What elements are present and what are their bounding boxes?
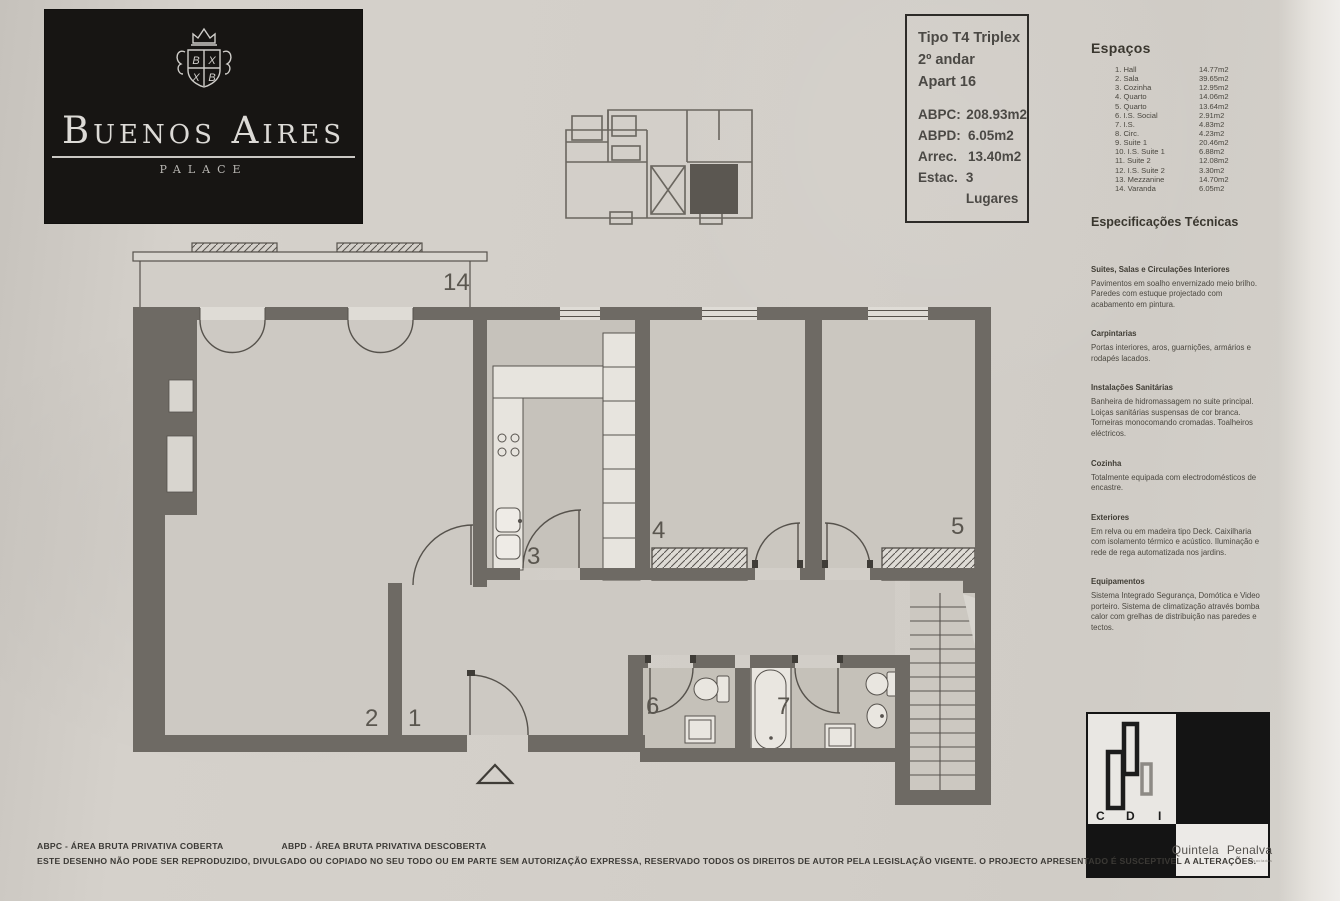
spec-section: Carpintarias Portas interiores, aros, gu… bbox=[1091, 329, 1263, 364]
espacos-item: 12. I.S. Suite 23.30m2 bbox=[1091, 167, 1271, 175]
espacos-item: 1. Hall14.77m2 bbox=[1091, 66, 1271, 74]
room-label-quarto5: 5 bbox=[951, 513, 964, 540]
unit-metrics: ABPC: 208.93m2 ABPD: 6.05m2 Arrec. 13.40… bbox=[918, 105, 1027, 210]
metric-estac: Estac. 3 Lugares bbox=[918, 168, 1027, 210]
footer: ABPC - ÁREA BRUTA PRIVATIVA COBERTAABPD … bbox=[37, 841, 1256, 866]
logo-subtitle: PALACE bbox=[159, 163, 247, 176]
unit-floor: 2º andar bbox=[918, 50, 1027, 72]
espacos-item: 7. I.S.4.83m2 bbox=[1091, 121, 1271, 129]
scanned-floorplan-sheet: B X X B Buenos Aires PALACE Tipo T4 Trip… bbox=[0, 0, 1340, 901]
espacos-title: Espaços bbox=[1091, 40, 1271, 56]
entrance-arrow-icon bbox=[478, 765, 512, 783]
espacos-item: 11. Suite 212.08m2 bbox=[1091, 157, 1271, 165]
espacos-item: 4. Quarto14.06m2 bbox=[1091, 93, 1271, 101]
footer-legend: ABPC - ÁREA BRUTA PRIVATIVA COBERTAABPD … bbox=[37, 841, 1256, 851]
room-label-is7: 7 bbox=[777, 693, 790, 720]
brand-black-cell bbox=[1176, 714, 1268, 824]
room-label-is6: 6 bbox=[646, 693, 659, 720]
espacos-item: 2. Sala39.65m2 bbox=[1091, 75, 1271, 83]
espacos-item: 9. Suite 120.46m2 bbox=[1091, 139, 1271, 147]
cdi-logo-icon: C D I bbox=[1088, 714, 1176, 824]
spec-section: Suites, Salas e Circulações Interiores P… bbox=[1091, 265, 1263, 311]
legend-abpd: ABPD - ÁREA BRUTA PRIVATIVA DESCOBERTA bbox=[282, 841, 487, 851]
right-panel: Espaços 1. Hall14.77m2 2. Sala39.65m2 3.… bbox=[1091, 40, 1271, 633]
paper-edge-highlight bbox=[1278, 0, 1340, 901]
svg-text:I: I bbox=[1158, 809, 1161, 823]
espacos-item: 10. I.S. Suite 16.88m2 bbox=[1091, 148, 1271, 156]
spec-section: Equipamentos Sistema Integrado Segurança… bbox=[1091, 577, 1263, 633]
key-plan bbox=[552, 100, 764, 230]
room-label-varanda: 14 bbox=[443, 269, 470, 296]
room-floors bbox=[140, 261, 975, 790]
legend-abpc: ABPC - ÁREA BRUTA PRIVATIVA COBERTA bbox=[37, 841, 224, 851]
espacos-item: 14. Varanda6.05m2 bbox=[1091, 185, 1271, 193]
svg-text:B: B bbox=[208, 72, 215, 84]
logo-buenos-aires: B X X B Buenos Aires PALACE bbox=[45, 10, 362, 223]
metric-arrec: Arrec. 13.40m2 bbox=[918, 147, 1027, 168]
svg-text:X: X bbox=[191, 72, 200, 84]
room-label-quarto4: 4 bbox=[652, 517, 665, 544]
logo-title: Buenos Aires bbox=[52, 112, 355, 158]
espacos-item: 3. Cozinha12.95m2 bbox=[1091, 84, 1271, 92]
svg-text:X: X bbox=[207, 55, 216, 67]
footer-disclaimer: ESTE DESENHO NÃO PODE SER REPRODUZIDO, D… bbox=[37, 856, 1256, 866]
bidet-icon bbox=[867, 704, 887, 728]
svg-text:B: B bbox=[192, 55, 199, 67]
espacos-item: 5. Quarto13.64m2 bbox=[1091, 103, 1271, 111]
espacos-list: 1. Hall14.77m2 2. Sala39.65m2 3. Cozinha… bbox=[1091, 66, 1271, 193]
specs-title: Especificações Técnicas bbox=[1091, 215, 1271, 229]
svg-text:C: C bbox=[1096, 809, 1105, 823]
unit-type: Tipo T4 Triplex bbox=[918, 28, 1027, 50]
key-plan-highlight bbox=[690, 164, 738, 214]
espacos-item: 8. Circ.4.23m2 bbox=[1091, 130, 1271, 138]
spec-section: Exteriores Em relva ou em madeira tipo D… bbox=[1091, 513, 1263, 559]
wall-niches bbox=[167, 380, 193, 492]
info-box: Tipo T4 Triplex 2º andar Apart 16 ABPC: … bbox=[905, 14, 1029, 223]
room-label-sala: 2 bbox=[365, 705, 378, 732]
spec-section: Instalações Sanitárias Banheira de hidro… bbox=[1091, 383, 1263, 439]
espacos-item: 13. Mezzanine14.70m2 bbox=[1091, 176, 1271, 184]
metric-abpc: ABPC: 208.93m2 bbox=[918, 105, 1027, 126]
svg-text:D: D bbox=[1126, 809, 1135, 823]
unit-number: Apart 16 bbox=[918, 72, 1027, 94]
room-label-cozinha: 3 bbox=[527, 543, 540, 570]
spec-section: Cozinha Totalmente equipada com electrod… bbox=[1091, 459, 1263, 494]
floor-plan: 14 2 1 3 4 5 6 7 bbox=[125, 238, 995, 813]
metric-abpd: ABPD: 6.05m2 bbox=[918, 126, 1027, 147]
crest-icon: B X X B bbox=[152, 24, 256, 106]
espacos-item: 6. I.S. Social2.91m2 bbox=[1091, 112, 1271, 120]
brand-cdi: C D I bbox=[1088, 714, 1176, 824]
room-label-hall: 1 bbox=[408, 705, 421, 732]
